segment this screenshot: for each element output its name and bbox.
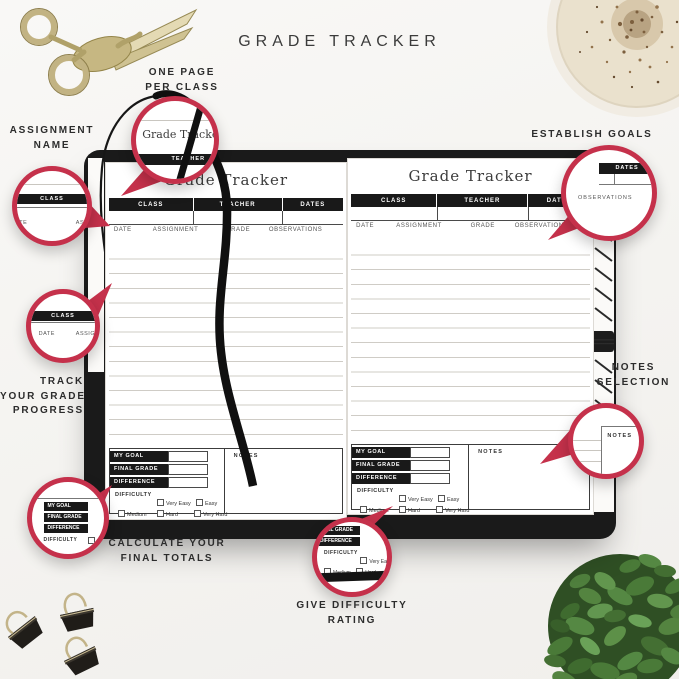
callout-assignment-name: CLASS DATE ASSIGNMENT bbox=[26, 289, 100, 363]
notes-zone: NOTES bbox=[224, 449, 342, 513]
callout-notes-selection: NOTES bbox=[568, 403, 644, 479]
difficulty-row-2: Medium Hard Very Hard bbox=[110, 503, 221, 512]
rule-line bbox=[17, 184, 87, 185]
label-establish-goals: ESTABLISH GOALS bbox=[512, 128, 672, 143]
totals-section: MY GOAL FINAL GRADE DIFFERENCE DIFFICULT… bbox=[109, 448, 343, 514]
callout-establish-goals: DATES OBSERVATIONS bbox=[561, 145, 657, 241]
checkbox-icon bbox=[399, 506, 406, 513]
class-teacher-dates-bar: CLASS TEACHER DATES bbox=[109, 198, 343, 211]
plant-image bbox=[520, 526, 679, 679]
label-assignment-name: ASSIGNMENT NAME bbox=[0, 124, 104, 153]
rule-line bbox=[17, 207, 87, 208]
checkbox-icon bbox=[194, 510, 201, 517]
mini-date-label: DATE bbox=[12, 220, 27, 226]
difficulty-label: DIFFICULTY bbox=[115, 492, 152, 498]
class-header: CLASS bbox=[109, 198, 194, 211]
label-line: SELECTION bbox=[588, 376, 679, 391]
difference-cell bbox=[410, 473, 450, 484]
binder-clips-image bbox=[0, 585, 150, 679]
notes-label: NOTES bbox=[478, 449, 503, 455]
page-heading: Grade Tracker bbox=[348, 167, 593, 185]
difference-label: DIFFERENCE bbox=[110, 477, 168, 488]
totals-section: MY GOAL FINAL GRADE DIFFERENCE DIFFICULT… bbox=[351, 444, 590, 510]
rule-line bbox=[136, 120, 214, 121]
label-calculate-totals: CALCULATE YOUR FINAL TOTALS bbox=[92, 537, 242, 566]
mini-difficulty-label: DIFFICULTY bbox=[44, 537, 78, 543]
notes-divider bbox=[601, 426, 602, 474]
label-line: PER CLASS bbox=[134, 81, 230, 96]
my-goal-cell bbox=[410, 447, 450, 458]
difficulty-row-1: DIFFICULTY Very Easy Easy bbox=[110, 492, 221, 501]
cell-divider bbox=[614, 174, 615, 184]
difficulty-row-2: Medium Hard Very Hard bbox=[352, 499, 466, 508]
rule-line bbox=[573, 461, 601, 462]
label-line: NAME bbox=[0, 139, 104, 154]
label-line: RATING bbox=[272, 614, 432, 629]
checkbox-icon bbox=[157, 510, 164, 517]
label-line: ONE PAGE bbox=[134, 66, 230, 81]
table-column-headers: DATE ASSIGNMENT GRADE OBSERVATIONS bbox=[106, 227, 346, 239]
product-image-canvas: GRADE TRACKER Grade Tracker CLASS TEACHE… bbox=[0, 0, 679, 679]
mini-cover-edge bbox=[313, 571, 390, 583]
final-grade-cell bbox=[410, 460, 450, 471]
my-goal-label: MY GOAL bbox=[110, 451, 168, 462]
mini-date-label: DATE bbox=[39, 331, 55, 337]
mini-dates-bar: DATES bbox=[599, 163, 656, 174]
callout-one-page-per-class: Grade Tracker TEACHER bbox=[131, 96, 219, 184]
label-line: CALCULATE YOUR bbox=[92, 537, 242, 552]
difference-cell bbox=[168, 477, 208, 488]
assignment-column: ASSIGNMENT bbox=[396, 223, 442, 229]
medium-option: Medium bbox=[118, 503, 147, 521]
mini-final-grade-bar: FINAL GRADE bbox=[44, 513, 89, 522]
observations-column: OBSERVATIONS bbox=[269, 227, 323, 233]
label-one-page-per-class: ONE PAGE PER CLASS bbox=[134, 66, 230, 95]
mini-my-goal-bar: MY GOAL bbox=[44, 502, 89, 511]
class-header: CLASS bbox=[351, 194, 437, 207]
rule-line bbox=[573, 450, 601, 451]
notes-label: NOTES bbox=[234, 453, 259, 459]
difference-label: DIFFERENCE bbox=[352, 473, 410, 484]
label-line: ESTABLISH GOALS bbox=[512, 128, 672, 143]
mini-class-bar: CLASS bbox=[28, 311, 97, 321]
label-notes-selection: NOTES SELECTION bbox=[588, 361, 679, 390]
mini-class-bar: CLASS bbox=[14, 194, 90, 204]
label-line: TRACK bbox=[0, 375, 84, 390]
dates-header: DATES bbox=[283, 198, 343, 211]
final-grade-label: FINAL GRADE bbox=[110, 464, 168, 475]
mini-page-heading: Grade Tracker bbox=[142, 128, 219, 141]
medium-option: Medium bbox=[360, 499, 389, 517]
label-line: NOTES bbox=[588, 361, 679, 376]
notebook-page-left: Grade Tracker CLASS TEACHER DATES DATE A… bbox=[105, 162, 347, 520]
hard-option: Hard bbox=[399, 499, 420, 517]
teacher-header: TEACHER bbox=[194, 198, 283, 211]
label-line: PROGRESS bbox=[0, 404, 84, 419]
grade-column: GRADE bbox=[226, 227, 250, 233]
label-line: ASSIGNMENT bbox=[0, 124, 104, 139]
label-give-difficulty-rating: GIVE DIFFICULTY RATING bbox=[272, 599, 432, 628]
notebook-page-right: Grade Tracker CLASS TEACHER DATES DATE A… bbox=[347, 158, 594, 515]
mini-difficulty-label: DIFFICULTY bbox=[324, 550, 358, 556]
checkbox-icon bbox=[436, 506, 443, 513]
page-heading: Grade Tracker bbox=[106, 171, 346, 189]
mini-notes-label: NOTES bbox=[607, 433, 632, 439]
mini-difference-bar: DIFFERENCE bbox=[312, 537, 360, 546]
rule-line bbox=[599, 184, 652, 185]
assignment-column: ASSIGNMENT bbox=[153, 227, 199, 233]
label-line: GIVE DIFFICULTY bbox=[272, 599, 432, 614]
callout-difficulty-rating: FINAL GRADE DIFFERENCE DIFFICULTY Very E… bbox=[312, 517, 392, 597]
my-goal-cell bbox=[168, 451, 208, 462]
rule-line bbox=[32, 498, 104, 499]
mini-teacher-bar: TEACHER bbox=[136, 154, 214, 165]
rule-line bbox=[31, 322, 95, 323]
my-goal-label: MY GOAL bbox=[352, 447, 410, 458]
checkbox-icon bbox=[360, 506, 367, 513]
callout-assignment-class: CLASS DATE ASSIGNMENT bbox=[12, 166, 92, 246]
final-grade-label: FINAL GRADE bbox=[352, 460, 410, 471]
difficulty-label: DIFFICULTY bbox=[357, 488, 394, 494]
mini-difference-bar: DIFFERENCE bbox=[44, 524, 89, 533]
mini-ribbon bbox=[175, 97, 208, 184]
grade-column: GRADE bbox=[471, 223, 495, 229]
label-track-progress: TRACK YOUR GRADE PROGRESS bbox=[0, 375, 84, 419]
date-column: DATE bbox=[356, 223, 374, 229]
main-title: GRADE TRACKER bbox=[0, 33, 679, 51]
mini-assignment-label: ASSIGNMENT bbox=[76, 331, 100, 337]
rule-line bbox=[573, 440, 601, 441]
hard-option: Hard bbox=[157, 503, 178, 521]
class-teacher-dates-bar: CLASS TEACHER DATES bbox=[351, 194, 590, 207]
final-grade-cell bbox=[168, 464, 208, 475]
header-fill-row bbox=[351, 207, 590, 221]
table-column-headers: DATE ASSIGNMENT GRADE OBSERVATIONS bbox=[348, 223, 593, 235]
very-hard-option: Very Hard bbox=[194, 503, 227, 521]
teacher-header: TEACHER bbox=[437, 194, 528, 207]
ruled-lines bbox=[351, 241, 590, 442]
mini-observations-label: OBSERVATIONS bbox=[578, 195, 632, 201]
date-column: DATE bbox=[114, 227, 132, 233]
mini-final-grade-bar: FINAL GRADE bbox=[312, 526, 360, 535]
label-line: FINAL TOTALS bbox=[92, 552, 242, 567]
label-line: YOUR GRADE bbox=[0, 390, 84, 405]
checkbox-icon bbox=[118, 510, 125, 517]
difficulty-row-1: DIFFICULTY Very Easy Easy bbox=[352, 488, 466, 497]
very-hard-option: Very Hard bbox=[436, 499, 469, 517]
observations-column: OBSERVATIONS bbox=[515, 223, 569, 229]
ruled-lines bbox=[109, 245, 343, 446]
rule-line bbox=[601, 426, 639, 427]
header-fill-row bbox=[109, 211, 343, 225]
